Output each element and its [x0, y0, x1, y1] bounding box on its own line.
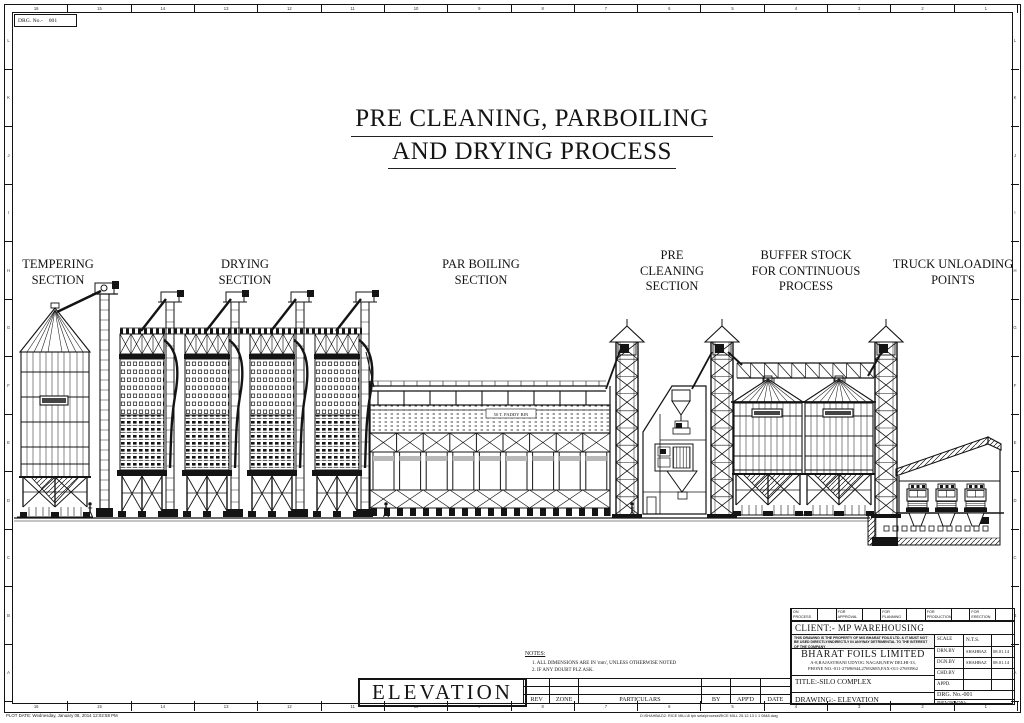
ground-line [14, 518, 870, 521]
truck [906, 484, 929, 526]
status-cell-label: FOR PRODUCTION [925, 609, 951, 621]
drawing-title-row: TITLE:-SILO COMPLEX [791, 675, 934, 692]
file-path-text: D:\SHAHBAZ\2. RICE MILL\8 tph sela\proce… [640, 714, 778, 718]
receiving-hopper [909, 513, 926, 526]
company-address: A-8,RAJASTHANI UDYOG NAGAR,NEW DELHI-33,… [791, 660, 934, 675]
notes-block: NOTES: 1. ALL DIMENSIONS ARE IN 'mm', UN… [525, 651, 735, 675]
notes-heading: NOTES: [525, 651, 735, 657]
company-name: BHARAT FOILS LIMITED [791, 648, 934, 660]
scale-label: SCALE [934, 634, 963, 646]
note-item: 2. IF ANY DOUBT PLZ ASK. [532, 667, 735, 674]
drawing-view-row: DRAWING:- ELEVATION [791, 692, 934, 704]
tempering-silo [17, 303, 93, 517]
revision-header-cell: BY [701, 695, 730, 704]
revision-header-cell: APP'D [730, 695, 759, 704]
status-cell-box [906, 609, 925, 621]
drawing-sheet: 16151413121110987654321 1615141312111098… [0, 0, 1024, 723]
precleaning-building [606, 348, 712, 514]
approval-status-row: ON PROCESS FOR APPROVAL FOR PLANNING FOR… [791, 609, 1014, 621]
revision-row-empty [523, 687, 790, 695]
revision-header-cell: REV [523, 695, 549, 704]
scale-extra-cell [991, 634, 1014, 646]
dryer-tower [117, 334, 177, 517]
revision-header-cell: PARTICULARS [578, 695, 701, 704]
personnel-date: 08.01.14 [991, 646, 1014, 657]
personnel-value [963, 668, 991, 679]
status-cell-box [817, 609, 836, 621]
scale-value: N.T.S. [963, 634, 991, 646]
title-block: ON PROCESS FOR APPROVAL FOR PLANNING FOR… [790, 608, 1015, 705]
personnel-date [991, 679, 1014, 690]
personnel-label: APPD. [934, 679, 963, 690]
buffer-silo [729, 376, 807, 516]
status-cell-label: FOR PLANNING [880, 609, 906, 621]
inclined-chute [141, 299, 166, 331]
client-row: CLIENT:- MP WAREHOUSING [791, 621, 1014, 634]
status-cell-label: FOR ERECTION [969, 609, 995, 621]
view-label-box: ELEVATION [358, 678, 527, 707]
status-cell-label: ON PROCESS [791, 609, 817, 621]
revision-table: REVZONEPARTICULARSBYAPP'DDATE [523, 678, 791, 704]
inclined-chute [57, 291, 101, 312]
status-cell-label: FOR APPROVAL [836, 609, 862, 621]
personnel-label: CHD.BY [934, 668, 963, 679]
personnel-date [991, 668, 1014, 679]
parboiling-vessels [373, 452, 607, 490]
status-cell-box [862, 609, 881, 621]
personnel-label: DRN.BY [934, 646, 963, 657]
view-label: ELEVATION [372, 680, 513, 705]
parboiling-building: 50 T. PADDY BIN [366, 352, 610, 516]
note-item: 1. ALL DIMENSIONS ARE IN 'mm', UNLESS OT… [532, 660, 735, 667]
disclaimer-text: THIS DRAWING IS THE PROPERTY OF M/S BHAR… [791, 634, 934, 648]
personnel-label: DGN.BY [934, 657, 963, 668]
revision-table-header: REVZONEPARTICULARSBYAPP'DDATE [523, 695, 790, 704]
personnel-date: 08.01.14 [991, 657, 1014, 668]
title-block-revision: REVISION:- [934, 699, 1014, 704]
paddy-bin-label: 50 T. PADDY BIN [494, 412, 529, 417]
status-cell-box [995, 609, 1014, 621]
title-block-drg-no: DRG. No.-001 [934, 690, 1014, 699]
buffer-truss-conveyor [728, 348, 884, 384]
status-cell-box [951, 609, 970, 621]
personnel-value: SHAHBAZ [963, 646, 991, 657]
revision-row-empty [523, 679, 790, 687]
lattice-tower [610, 319, 644, 518]
personnel-value [963, 679, 991, 690]
dryer-top-walkway [120, 328, 362, 334]
revision-header-cell: DATE [760, 695, 790, 704]
plot-date-text: PLOT DATE: Wednesday, January 08, 2014 1… [6, 713, 118, 718]
personnel-value: SHAHBAZ [963, 657, 991, 668]
revision-header-cell: ZONE [549, 695, 577, 704]
